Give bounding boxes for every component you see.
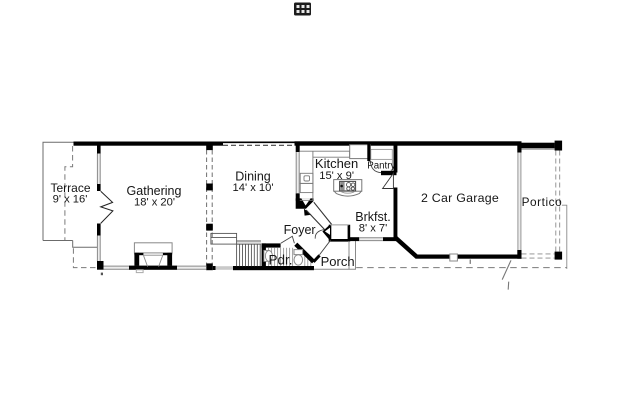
svg-text:18' x 20': 18' x 20': [134, 197, 175, 209]
svg-text:Portico: Portico: [522, 195, 563, 209]
svg-text:Pantry: Pantry: [367, 160, 395, 171]
svg-text:8' x 7': 8' x 7': [359, 223, 388, 235]
svg-text:Kitchen: Kitchen: [315, 156, 358, 171]
svg-text:15' x 9': 15' x 9': [319, 170, 354, 182]
svg-text:14' x 10': 14' x 10': [233, 182, 274, 194]
svg-text:2 Car Garage: 2 Car Garage: [421, 191, 499, 205]
svg-text:Pdr.: Pdr.: [268, 252, 292, 267]
svg-text:Foyer: Foyer: [284, 223, 316, 237]
svg-text:Porch: Porch: [321, 254, 355, 269]
svg-text:9' x 16': 9' x 16': [53, 193, 88, 205]
